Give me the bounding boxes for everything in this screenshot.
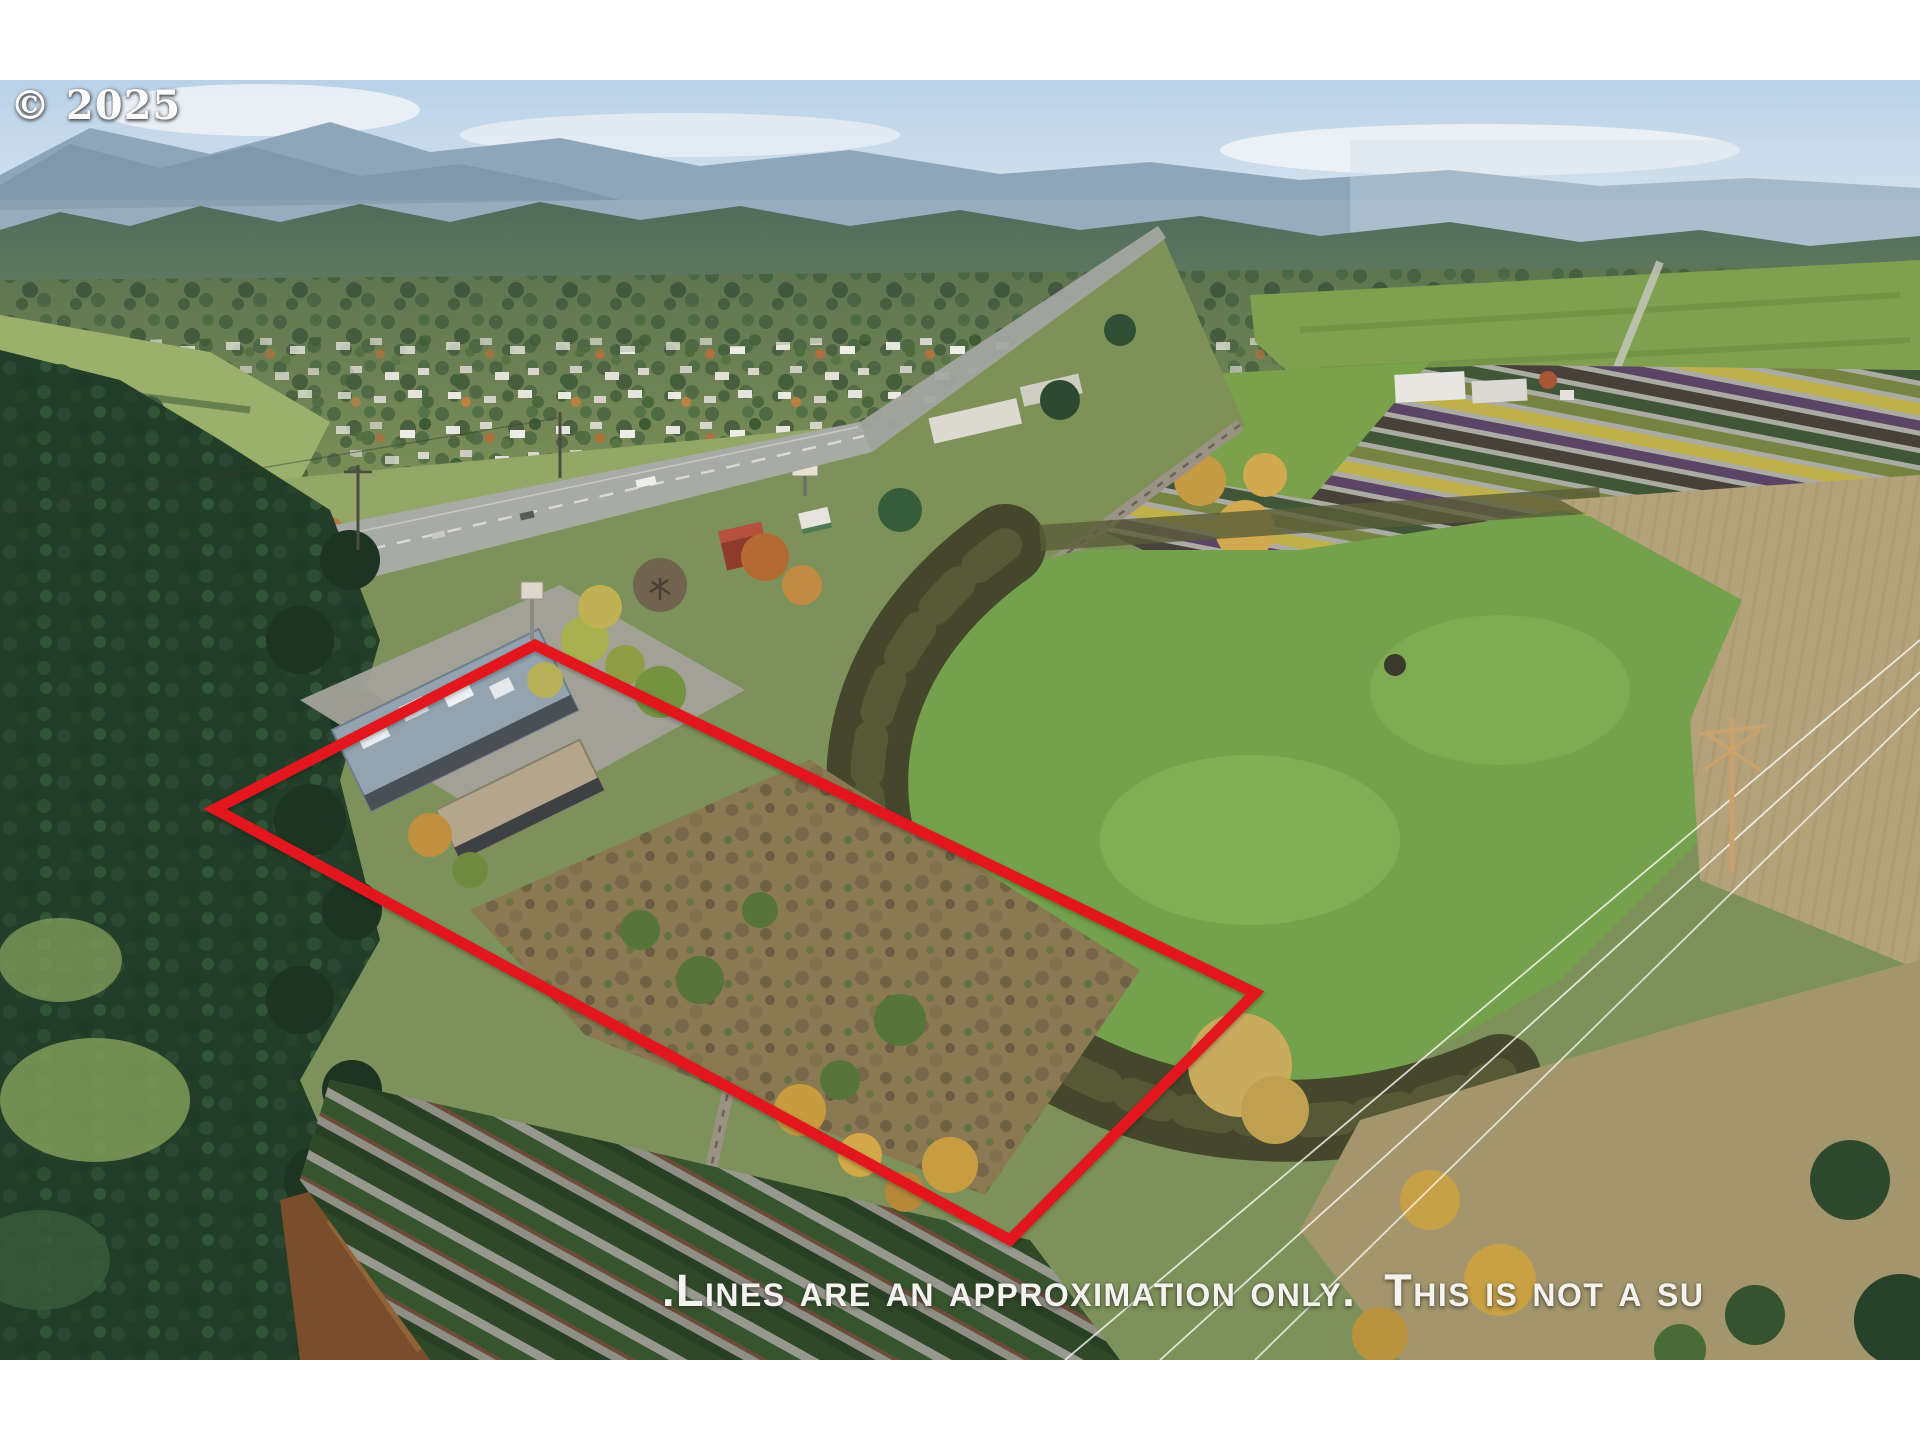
aerial-photo-scene: [0, 80, 1920, 1360]
disclaimer-text: .Lines are an approximation only. This i…: [662, 1268, 1704, 1313]
copyright-watermark: © 2025: [10, 82, 181, 130]
screenshot-body: { "photo": { "kind": "aerial-drone-photo…: [0, 0, 1920, 1440]
gas-station-building: [798, 507, 832, 534]
bare-oak-tree: [633, 558, 687, 612]
page-root: html,body{margin:0;padding:0;} body{ wid…: [0, 0, 1920, 1440]
orange-trees: [741, 533, 822, 605]
screenshot-canvas: © 2025 .Lines are an approximation only.…: [0, 0, 1920, 1440]
letterbox-top: [0, 0, 1920, 80]
aerial-photo: © 2025 .Lines are an approximation only.…: [0, 80, 1920, 1360]
letterbox-bottom: [0, 1360, 1920, 1440]
